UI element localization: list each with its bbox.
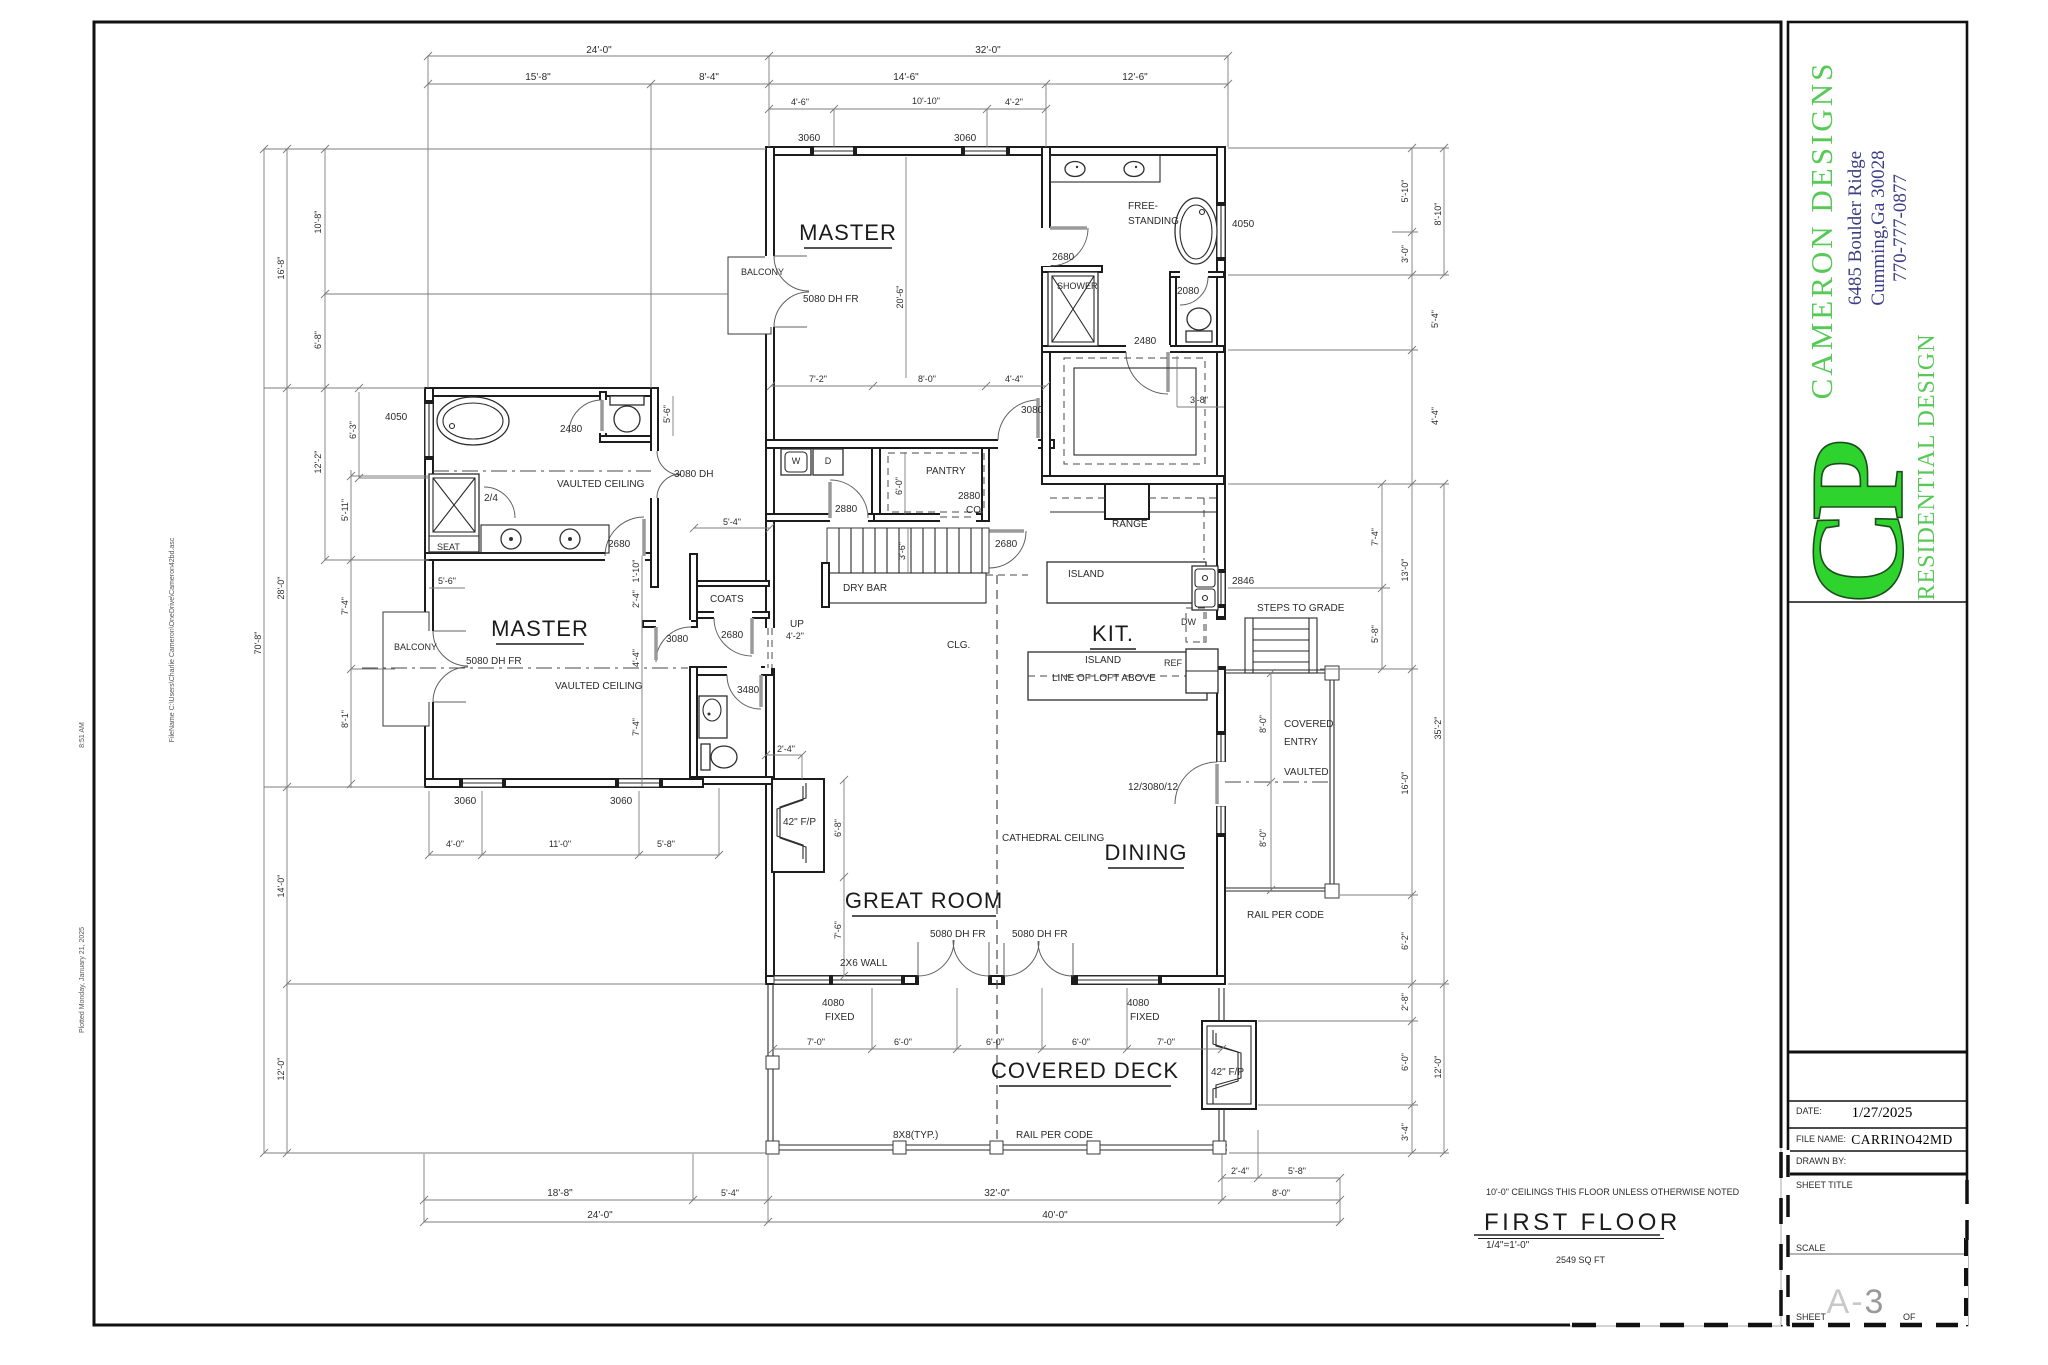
svg-text:10'-10": 10'-10" (912, 96, 940, 106)
svg-text:DINING: DINING (1105, 840, 1188, 865)
svg-text:2680: 2680 (1052, 252, 1075, 263)
svg-text:2080: 2080 (1177, 286, 1200, 297)
svg-text:4'-6": 4'-6" (791, 97, 809, 107)
svg-text:12'-2": 12'-2" (313, 451, 323, 474)
svg-text:8'-1": 8'-1" (340, 710, 350, 728)
svg-text:3080: 3080 (666, 634, 689, 645)
svg-text:VAULTED: VAULTED (1284, 767, 1329, 778)
svg-text:7'-6": 7'-6" (833, 921, 843, 939)
svg-text:2880: 2880 (958, 491, 981, 502)
svg-text:12'-6": 12'-6" (1122, 72, 1148, 83)
svg-text:6'-0": 6'-0" (986, 1037, 1004, 1047)
svg-text:6'-0": 6'-0" (1400, 1053, 1410, 1071)
svg-text:SCALE: SCALE (1796, 1243, 1826, 1253)
svg-text:Cumming,Ga 30028: Cumming,Ga 30028 (1868, 150, 1889, 305)
svg-text:W: W (792, 456, 801, 466)
svg-text:FILE NAME:: FILE NAME: (1796, 1134, 1846, 1144)
svg-text:3'-0": 3'-0" (1400, 245, 1410, 263)
svg-text:MASTER: MASTER (799, 220, 897, 245)
svg-text:5080 DH FR: 5080 DH FR (803, 294, 859, 305)
svg-text:4'-2": 4'-2" (786, 631, 804, 641)
svg-text:8'-0": 8'-0" (918, 374, 936, 384)
svg-text:8'-0": 8'-0" (1272, 1188, 1290, 1198)
svg-text:6'-8": 6'-8" (313, 331, 323, 349)
svg-text:2549 SQ FT: 2549 SQ FT (1556, 1255, 1606, 1265)
svg-text:13'-0": 13'-0" (1400, 559, 1410, 582)
svg-text:2/4: 2/4 (484, 493, 498, 504)
svg-text:7'-2": 7'-2" (809, 374, 827, 384)
svg-text:REF: REF (1164, 658, 1183, 668)
svg-text:3080 DH: 3080 DH (674, 469, 713, 480)
svg-text:5080 DH FR: 5080 DH FR (1012, 929, 1068, 940)
svg-text:16'-0": 16'-0" (1400, 772, 1410, 795)
svg-text:RAIL PER CODE: RAIL PER CODE (1016, 1130, 1093, 1141)
svg-text:6'-0": 6'-0" (1072, 1037, 1090, 1047)
svg-text:3'-8": 3'-8" (1190, 395, 1208, 405)
svg-text:8X8(TYP.): 8X8(TYP.) (893, 1130, 938, 1141)
svg-text:2680: 2680 (608, 539, 631, 550)
svg-text:5080 DH FR: 5080 DH FR (930, 929, 986, 940)
svg-text:LINE OF LOFT ABOVE: LINE OF LOFT ABOVE (1052, 673, 1156, 684)
svg-text:RAIL PER CODE: RAIL PER CODE (1247, 910, 1324, 921)
svg-text:CARRINO42MD: CARRINO42MD (1851, 1132, 1953, 1147)
svg-text:4'-4": 4'-4" (631, 649, 641, 667)
svg-text:70'-8": 70'-8" (253, 632, 263, 655)
svg-text:32'-0": 32'-0" (984, 1188, 1010, 1199)
svg-text:ISLAND: ISLAND (1085, 655, 1121, 666)
svg-text:VAULTED CEILING: VAULTED CEILING (557, 479, 645, 490)
svg-text:CLG.: CLG. (947, 640, 970, 651)
svg-text:12/3080/12: 12/3080/12 (1128, 782, 1178, 793)
svg-text:5080 DH FR: 5080 DH FR (466, 656, 522, 667)
svg-text:2480: 2480 (1134, 336, 1157, 347)
svg-text:6'-8": 6'-8" (833, 819, 843, 837)
svg-text:1'-10": 1'-10" (631, 560, 641, 583)
svg-text:7'-4": 7'-4" (340, 597, 350, 615)
svg-text:GREAT ROOM: GREAT ROOM (845, 888, 1003, 913)
svg-text:8'-0": 8'-0" (1258, 829, 1268, 847)
svg-text:7'-4": 7'-4" (1370, 528, 1380, 546)
svg-text:CO: CO (966, 505, 981, 516)
svg-text:COVERED: COVERED (1284, 719, 1333, 730)
svg-text:3060: 3060 (610, 796, 633, 807)
svg-text:24'-0": 24'-0" (586, 45, 612, 56)
svg-text:16'-8": 16'-8" (276, 257, 286, 280)
svg-text:COATS: COATS (710, 594, 744, 605)
svg-text:12'-0": 12'-0" (276, 1058, 286, 1081)
svg-text:2680: 2680 (721, 630, 744, 641)
svg-text:SHOWER: SHOWER (1057, 281, 1098, 291)
svg-text:6'-3": 6'-3" (348, 421, 358, 439)
svg-text:6485 Boulder Ridge: 6485 Boulder Ridge (1845, 151, 1866, 305)
svg-text:DRY BAR: DRY BAR (843, 583, 887, 594)
svg-text:12'-0": 12'-0" (1433, 1056, 1443, 1079)
svg-text:2880: 2880 (835, 504, 858, 515)
svg-text:5'-8": 5'-8" (1370, 625, 1380, 643)
svg-text:28'-0": 28'-0" (276, 577, 286, 600)
svg-text:VAULTED CEILING: VAULTED CEILING (555, 681, 643, 692)
svg-text:ISLAND: ISLAND (1068, 569, 1104, 580)
svg-text:14'-0": 14'-0" (276, 875, 286, 898)
svg-text:A-3: A-3 (1827, 1283, 1886, 1321)
svg-text:SHEET: SHEET (1796, 1312, 1827, 1322)
svg-text:FIRST FLOOR: FIRST FLOOR (1484, 1209, 1681, 1236)
svg-text:CP: CP (1783, 442, 1931, 606)
svg-text:3060: 3060 (798, 133, 821, 144)
svg-text:15'-8": 15'-8" (525, 72, 551, 83)
svg-text:DATE:: DATE: (1796, 1106, 1822, 1116)
svg-text:FileName C:\Users\Charlie Cam: FileName C:\Users\Charlie Cameron\OneDri… (169, 537, 176, 742)
svg-text:5'-11": 5'-11" (340, 499, 350, 521)
svg-text:5'-6": 5'-6" (438, 576, 456, 586)
svg-text:7'-0": 7'-0" (807, 1037, 825, 1047)
svg-text:24'-0": 24'-0" (587, 1210, 613, 1221)
svg-text:2'-8": 2'-8" (1400, 993, 1410, 1011)
svg-text:SEAT: SEAT (437, 542, 460, 552)
svg-text:3080: 3080 (1021, 405, 1044, 416)
svg-text:3'-6": 3'-6" (897, 542, 907, 560)
svg-text:ENTRY: ENTRY (1284, 737, 1318, 748)
svg-text:RESIDENTIAL DESIGN: RESIDENTIAL DESIGN (1914, 333, 1940, 600)
svg-text:1/4"=1'-0": 1/4"=1'-0" (1486, 1240, 1530, 1251)
svg-text:2'-4": 2'-4" (777, 744, 795, 754)
svg-text:18'-8": 18'-8" (547, 1188, 573, 1199)
svg-text:SHEET TITLE: SHEET TITLE (1796, 1180, 1853, 1190)
svg-text:6'-0": 6'-0" (894, 477, 904, 495)
svg-text:7'-0": 7'-0" (1157, 1037, 1175, 1047)
svg-text:32'-0": 32'-0" (975, 45, 1001, 56)
svg-text:20'-6": 20'-6" (895, 286, 905, 309)
svg-text:3'-4": 3'-4" (1400, 1123, 1410, 1141)
svg-text:6'-2": 6'-2" (1400, 932, 1410, 950)
svg-text:2X6 WALL: 2X6 WALL (840, 958, 888, 969)
svg-text:3480: 3480 (737, 685, 760, 696)
svg-text:BALCONY: BALCONY (741, 267, 784, 277)
svg-text:UP: UP (790, 619, 804, 630)
svg-text:2'-4": 2'-4" (631, 590, 641, 608)
svg-text:PANTRY: PANTRY (926, 466, 966, 477)
svg-text:2680: 2680 (995, 539, 1018, 550)
svg-text:DW: DW (1181, 617, 1196, 627)
svg-text:10'-8": 10'-8" (313, 211, 323, 234)
svg-text:10'-0" CEILINGS THIS FLOOR UNL: 10'-0" CEILINGS THIS FLOOR UNLESS OTHERW… (1486, 1187, 1740, 1197)
svg-text:14'-6": 14'-6" (893, 72, 919, 83)
svg-text:4'-4": 4'-4" (1005, 374, 1023, 384)
svg-text:11'-0": 11'-0" (549, 839, 571, 849)
svg-text:5'-10": 5'-10" (1400, 180, 1410, 203)
svg-text:3060: 3060 (954, 133, 977, 144)
svg-text:5'-8": 5'-8" (1288, 1166, 1306, 1176)
svg-text:STANDING: STANDING (1128, 216, 1179, 227)
svg-text:8'-10": 8'-10" (1433, 203, 1443, 226)
svg-text:FIXED: FIXED (825, 1012, 854, 1023)
svg-text:COVERED DECK: COVERED DECK (991, 1058, 1179, 1083)
svg-text:6'-0": 6'-0" (894, 1037, 912, 1047)
svg-text:35'-2": 35'-2" (1433, 717, 1443, 740)
svg-text:5'-4": 5'-4" (721, 1188, 739, 1198)
svg-text:5'-6": 5'-6" (662, 405, 672, 423)
svg-text:KIT.: KIT. (1092, 621, 1134, 646)
svg-text:4080: 4080 (822, 998, 845, 1009)
svg-text:OF: OF (1903, 1312, 1916, 1322)
svg-text:5'-8": 5'-8" (657, 839, 675, 849)
svg-text:STEPS TO GRADE: STEPS TO GRADE (1257, 603, 1345, 614)
svg-text:8'-4": 8'-4" (699, 72, 719, 83)
svg-text:1/27/2025: 1/27/2025 (1852, 1105, 1913, 1121)
svg-text:4'-0": 4'-0" (446, 839, 464, 849)
svg-text:4050: 4050 (1232, 219, 1255, 230)
svg-text:5'-4": 5'-4" (723, 517, 741, 527)
svg-text:RANGE: RANGE (1112, 519, 1148, 530)
svg-text:2846: 2846 (1232, 576, 1255, 587)
svg-text:4080: 4080 (1127, 998, 1150, 1009)
svg-text:3060: 3060 (454, 796, 477, 807)
svg-text:2480: 2480 (560, 424, 583, 435)
svg-text:4'-4": 4'-4" (1430, 407, 1440, 425)
svg-text:MASTER: MASTER (491, 616, 589, 641)
svg-text:DRAWN BY:: DRAWN BY: (1796, 1156, 1846, 1166)
svg-text:42" F/P: 42" F/P (1211, 1067, 1244, 1078)
svg-text:D: D (825, 456, 832, 466)
svg-text:CAMERON DESIGNS: CAMERON DESIGNS (1804, 61, 1839, 400)
svg-text:BALCONY: BALCONY (394, 642, 437, 652)
svg-text:FIXED: FIXED (1130, 1012, 1159, 1023)
svg-text:4'-2": 4'-2" (1005, 97, 1023, 107)
svg-text:2'-4": 2'-4" (1231, 1166, 1249, 1176)
svg-text:8'-0": 8'-0" (1258, 715, 1268, 733)
svg-text:42" F/P: 42" F/P (783, 817, 816, 828)
svg-text:7'-4": 7'-4" (631, 718, 641, 736)
svg-text:CATHEDRAL CEILING: CATHEDRAL CEILING (1002, 833, 1104, 844)
svg-text:FREE-: FREE- (1128, 201, 1158, 212)
svg-text:4050: 4050 (385, 412, 408, 423)
svg-text:40'-0": 40'-0" (1042, 1210, 1068, 1221)
svg-text:770-777-0877: 770-777-0877 (1890, 174, 1911, 282)
svg-text:5'-4": 5'-4" (1430, 310, 1440, 328)
